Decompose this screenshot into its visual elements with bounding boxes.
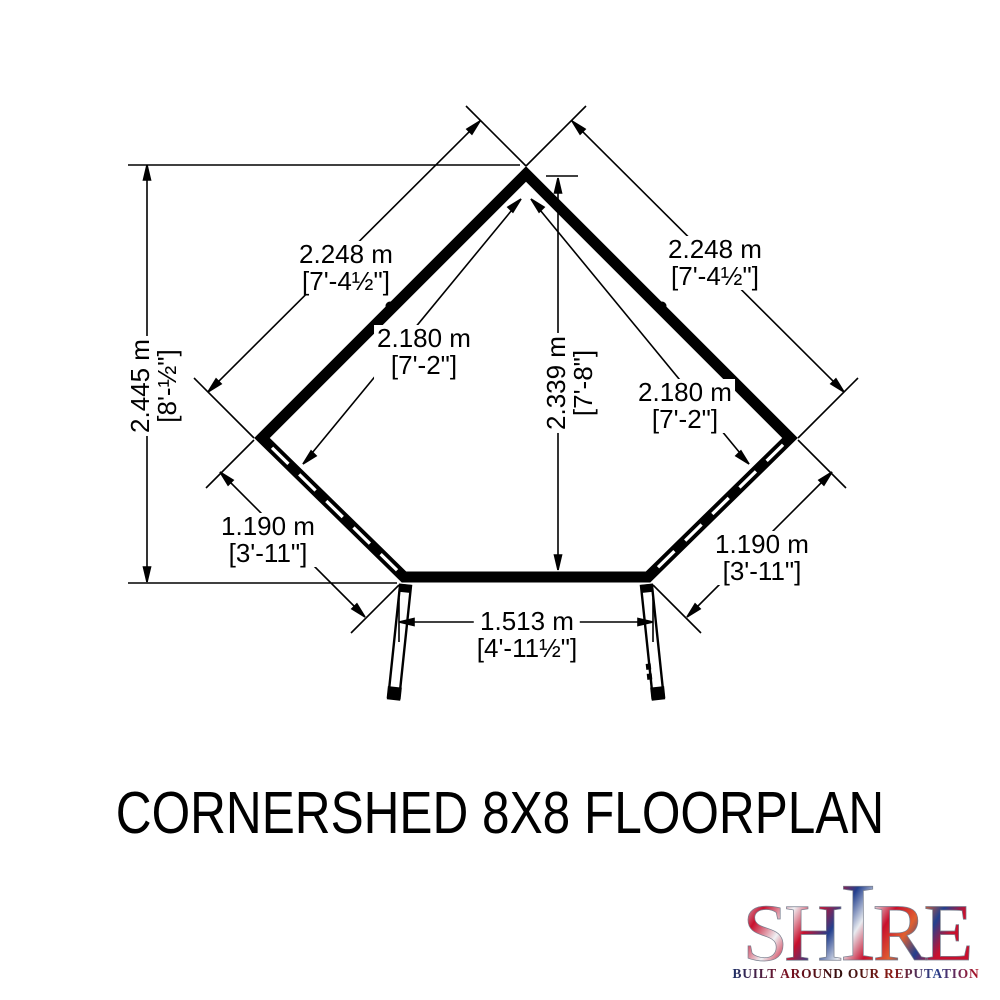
dim-imperial: [7'-2"] xyxy=(638,406,732,433)
dim-imperial: [3'-11"] xyxy=(221,540,315,567)
dim-metric: 2.180 m xyxy=(638,379,732,406)
label-interior-depth: 2.339 m [7'-8"] xyxy=(543,333,597,433)
dim-imperial: [7'-2"] xyxy=(377,352,471,379)
dim-imperial: [3'-11"] xyxy=(715,558,809,585)
label-right-wall: 2.248 m [7'-4½"] xyxy=(665,236,765,290)
floorplan-page: 2.248 m [7'-4½"] 2.248 m [7'-4½"] 2.180 … xyxy=(0,0,1000,1000)
right-door-hinge xyxy=(640,584,653,593)
logo-tagline: BUILT AROUND OUR REPUTATION xyxy=(733,966,980,981)
label-door-opening: 1.513 m [4'-11½"] xyxy=(474,608,580,662)
label-left-wall: 2.248 m [7'-4½"] xyxy=(296,241,396,295)
right-door xyxy=(637,584,665,700)
label-right-wall-interior: 2.180 m [7'-2"] xyxy=(635,379,735,433)
dim-metric: 1.513 m xyxy=(477,608,577,635)
label-front-right: 1.190 m [3'-11"] xyxy=(712,531,812,585)
dim-metric: 2.339 m xyxy=(543,336,570,430)
logo-letters: SH xyxy=(743,887,842,978)
floorplan-drawing xyxy=(0,0,1000,1000)
dim-imperial: [8'-½"] xyxy=(154,339,181,433)
left-door-hinge xyxy=(399,584,412,593)
page-title: CORNERSHED 8X8 FLOORPLAN xyxy=(80,779,920,847)
dim-metric: 1.190 m xyxy=(715,531,809,558)
shire-logo: SHIRE BUILT AROUND OUR REPUTATION xyxy=(720,856,992,984)
dim-imperial: [4'-11½"] xyxy=(477,635,577,662)
dim-imperial: [7'-4½"] xyxy=(299,268,393,295)
dim-imperial: [7'-8"] xyxy=(570,336,597,430)
dim-metric: 2.248 m xyxy=(668,236,762,263)
logo-letters: RE xyxy=(873,887,970,978)
dim-imperial: [7'-4½"] xyxy=(668,263,762,290)
left-wall-joint-dot xyxy=(386,302,395,311)
label-overall-depth: 2.445 m [8'-½"] xyxy=(127,336,181,436)
dim-metric: 2.445 m xyxy=(127,339,154,433)
right-door-handle-icon xyxy=(647,673,653,679)
label-left-wall-interior: 2.180 m [7'-2"] xyxy=(374,325,474,379)
dim-metric: 1.190 m xyxy=(221,513,315,540)
left-door-end-cap xyxy=(387,686,402,699)
right-door-end-cap xyxy=(650,686,665,699)
label-front-left: 1.190 m [3'-11"] xyxy=(218,513,318,567)
dim-metric: 2.248 m xyxy=(299,241,393,268)
right-wall-joint-dot xyxy=(658,302,667,311)
right-door-handle-icon xyxy=(646,663,652,669)
dim-metric: 2.180 m xyxy=(377,325,471,352)
